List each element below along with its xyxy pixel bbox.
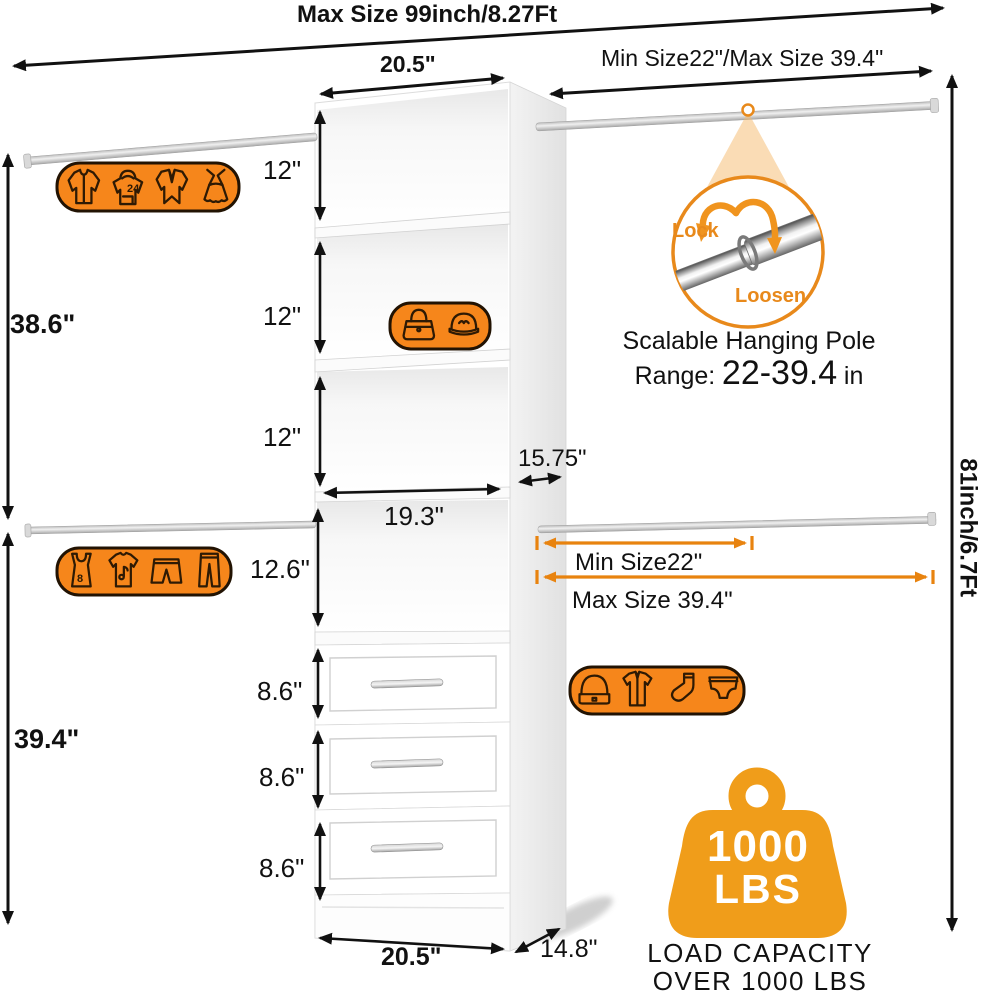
hoodie-number: 24 bbox=[127, 183, 140, 195]
rod-end-cap bbox=[928, 512, 936, 525]
lower-rod-min-label: Min Size22" bbox=[575, 550, 702, 575]
interior-width-label: 19.3" bbox=[384, 503, 444, 530]
pole-range-unit: in bbox=[844, 362, 863, 390]
drawer-2 bbox=[315, 722, 510, 810]
base-recess-line bbox=[322, 907, 504, 908]
badge-lower-left bbox=[57, 548, 231, 595]
lower-right-rod bbox=[538, 512, 936, 535]
rod-end-cap bbox=[23, 154, 31, 169]
bottom-depth-label: 14.8" bbox=[540, 936, 598, 962]
drawer-1 bbox=[315, 643, 510, 725]
pole-range-prefix: Range: bbox=[635, 362, 716, 390]
left-lower-height-label: 39.4" bbox=[14, 725, 79, 753]
badge-drawer-side bbox=[570, 667, 744, 714]
diagram-graphics: 24 8 bbox=[0, 0, 986, 1000]
upper-depth-label: 15.75" bbox=[518, 446, 587, 471]
pole-range: Range: 22-39.4 in bbox=[622, 356, 876, 392]
badge-top-left bbox=[57, 163, 239, 211]
drawer1-dim-label: 8.6" bbox=[257, 678, 302, 705]
weight-value-label: 1000 bbox=[689, 824, 827, 870]
lock-label: Lock bbox=[672, 221, 719, 242]
rod-end-cap bbox=[930, 98, 939, 112]
rod-focus-dot bbox=[743, 105, 754, 116]
hanging-dim-label: 12.6" bbox=[250, 556, 310, 583]
drawer-3 bbox=[315, 806, 510, 895]
badge-shelf bbox=[390, 303, 490, 349]
overall-width-label: Max Size 99inch/8.27Ft bbox=[297, 2, 557, 27]
tower-width-label: 20.5" bbox=[380, 52, 450, 76]
load-capacity-line2: OVER 1000 LBS bbox=[640, 968, 880, 995]
tank-number: 8 bbox=[77, 573, 83, 585]
closet-dimension-diagram: 24 8 bbox=[0, 0, 986, 1000]
upper-right-rod bbox=[536, 98, 939, 134]
shelf1-dim-label: 12" bbox=[263, 157, 301, 184]
shelf2-dim-label: 12" bbox=[263, 303, 301, 330]
drawer2-dim-label: 8.6" bbox=[259, 764, 304, 791]
pole-caption: Scalable Hanging Pole bbox=[620, 328, 878, 354]
closet-tower bbox=[315, 82, 617, 951]
drawer3-dim-label: 8.6" bbox=[259, 855, 304, 882]
top-rod-range-label: Min Size22"/Max Size 39.4" bbox=[601, 46, 883, 70]
compartment-1 bbox=[317, 89, 508, 228]
total-height-label: 81inch/6.7Ft bbox=[955, 453, 980, 603]
bottom-width-label: 20.5" bbox=[381, 944, 442, 970]
shelf3-dim-label: 12" bbox=[263, 424, 301, 451]
left-upper-height-label: 38.6" bbox=[10, 310, 75, 338]
weight-unit-label: LBS bbox=[689, 868, 827, 911]
load-capacity-line1: LOAD CAPACITY bbox=[640, 940, 880, 967]
loosen-label: Loosen bbox=[735, 286, 806, 307]
lower-rod-max-label: Max Size 39.4" bbox=[572, 588, 733, 613]
compartment-3 bbox=[317, 367, 508, 492]
tower-side-panel bbox=[510, 82, 566, 951]
rod-end-cap bbox=[25, 524, 31, 537]
lower-left-rod bbox=[25, 518, 316, 537]
top-rod-arrow bbox=[551, 71, 931, 94]
pole-range-value: 22-39.4 bbox=[722, 354, 837, 392]
